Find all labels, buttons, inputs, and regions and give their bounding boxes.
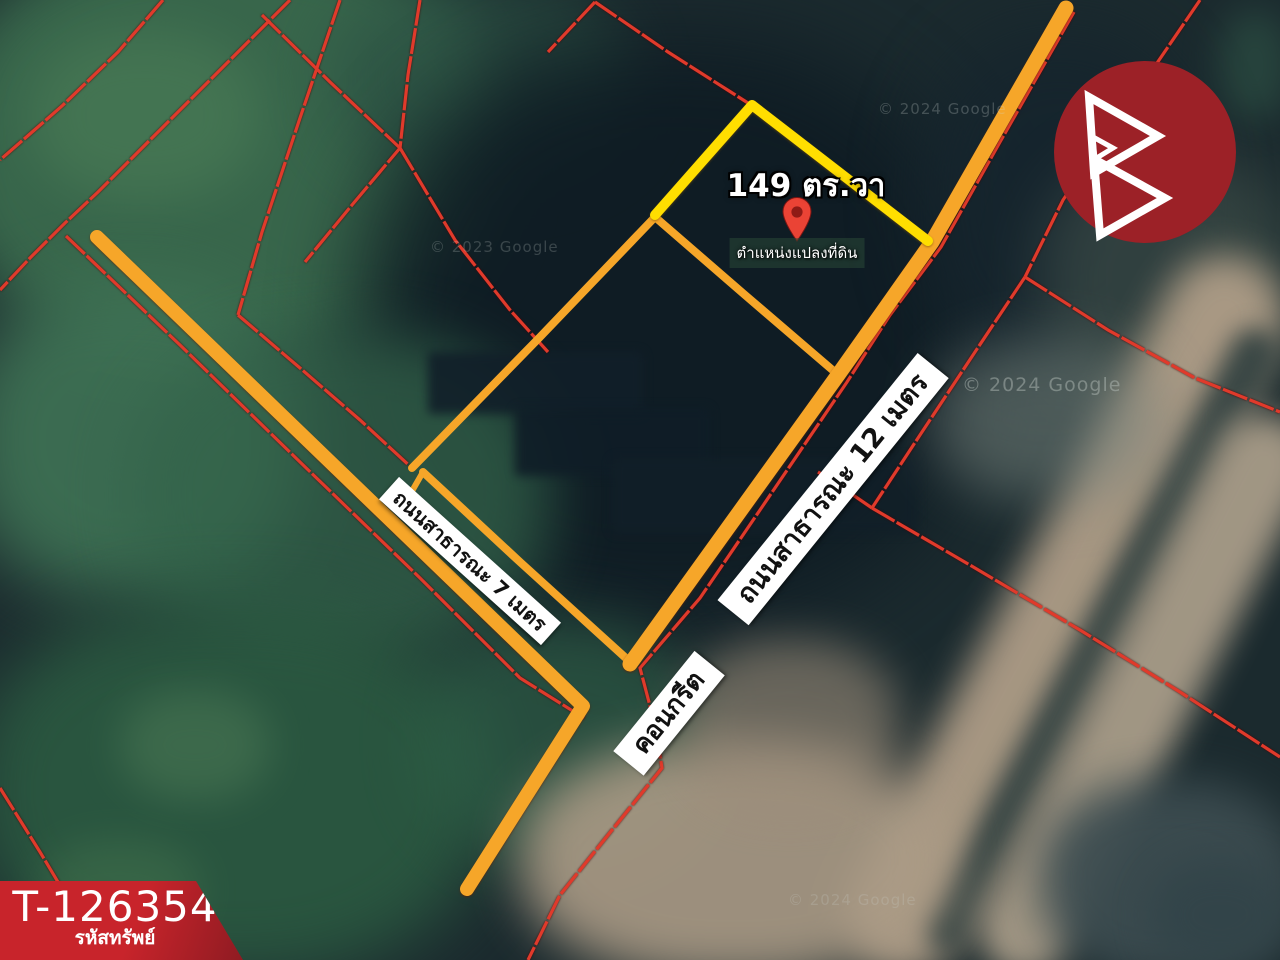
land-listing-map: © 2024 Google © 2023 Google © 2024 Googl… <box>0 0 1280 960</box>
property-code-caption: รหัสทรัพย์ <box>0 929 230 948</box>
google-watermark: © 2024 Google <box>788 891 917 909</box>
google-watermark: © 2024 Google <box>962 374 1121 396</box>
brand-logo-circle <box>1054 61 1236 243</box>
pin-caption: ตำแหน่งแปลงที่ดิน <box>730 238 865 268</box>
map-annotations <box>0 0 1280 960</box>
google-watermark: © 2023 Google <box>430 238 559 256</box>
property-code: T-126354 <box>0 885 230 929</box>
google-watermark: © 2024 Google <box>878 100 1007 118</box>
brand-logo <box>1054 61 1236 243</box>
plot-area-label: 149 ตร.วา <box>727 160 886 210</box>
